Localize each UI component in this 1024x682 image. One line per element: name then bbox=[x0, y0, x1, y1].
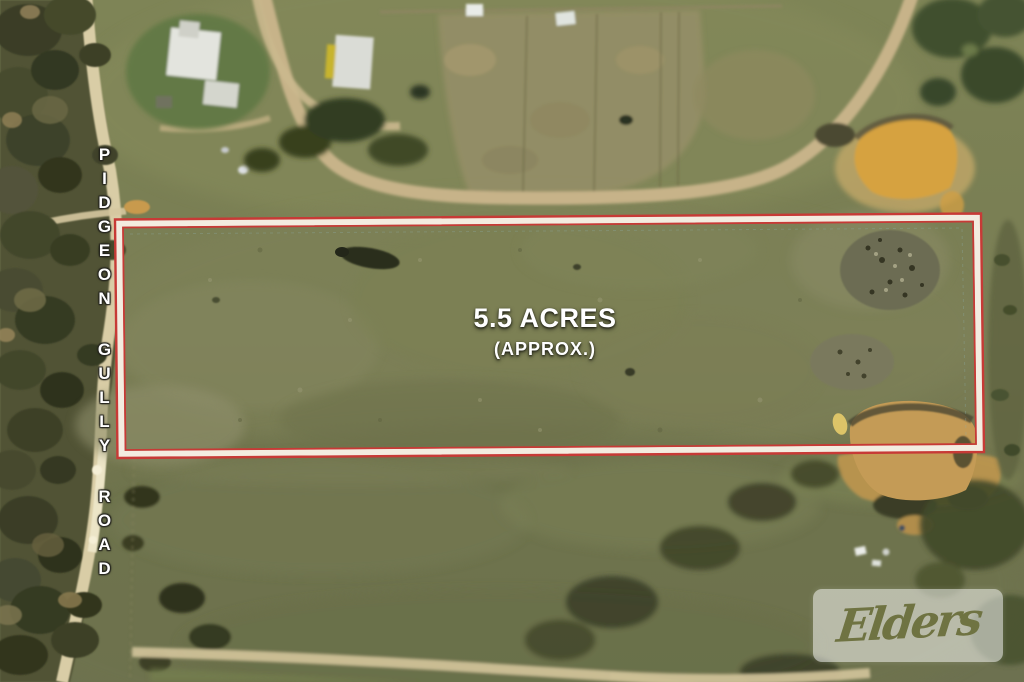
shed-roof bbox=[555, 11, 575, 26]
listing-photo-stage: PIDGEON GULLY ROAD 5.5 ACRES (APPROX.) E… bbox=[0, 0, 1024, 682]
approx-label: (APPROX.) bbox=[395, 339, 695, 360]
elders-logo-text: Elders bbox=[834, 592, 983, 653]
acreage-label-group: 5.5 ACRES (APPROX.) bbox=[395, 303, 695, 360]
elders-logo: Elders bbox=[813, 589, 1003, 662]
road-name-label: PIDGEON GULLY ROAD bbox=[89, 145, 119, 550]
area-label: 5.5 ACRES bbox=[395, 303, 695, 334]
shed-roof bbox=[466, 4, 483, 16]
